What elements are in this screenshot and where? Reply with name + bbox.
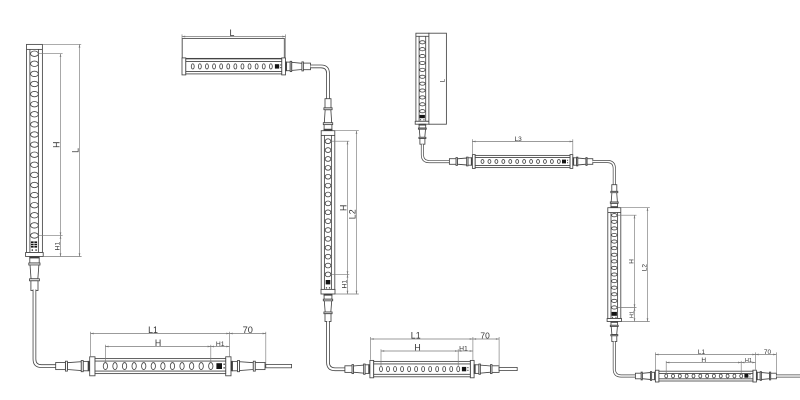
svg-text:L1: L1 — [698, 349, 706, 356]
svg-text:L: L — [439, 79, 446, 83]
svg-text:H1: H1 — [459, 345, 468, 352]
svg-text:70: 70 — [243, 325, 253, 335]
svg-text:L1: L1 — [148, 325, 158, 335]
svg-text:70: 70 — [764, 349, 772, 356]
svg-text:H1: H1 — [216, 341, 225, 348]
svg-text:L: L — [229, 28, 234, 38]
svg-text:H1: H1 — [342, 280, 349, 289]
svg-text:L2: L2 — [348, 209, 358, 219]
svg-text:H: H — [414, 342, 420, 352]
svg-text:H: H — [701, 357, 706, 364]
svg-text:H: H — [629, 259, 636, 264]
svg-text:H: H — [155, 338, 161, 348]
svg-text:H1: H1 — [745, 358, 752, 364]
svg-text:70: 70 — [480, 330, 490, 340]
svg-text:H: H — [52, 142, 62, 148]
svg-text:L3: L3 — [514, 136, 522, 143]
svg-text:L1: L1 — [411, 330, 421, 340]
svg-text:L: L — [71, 148, 81, 153]
svg-text:L2: L2 — [642, 264, 649, 272]
svg-text:H1: H1 — [630, 311, 636, 318]
svg-text:H1: H1 — [55, 242, 62, 251]
